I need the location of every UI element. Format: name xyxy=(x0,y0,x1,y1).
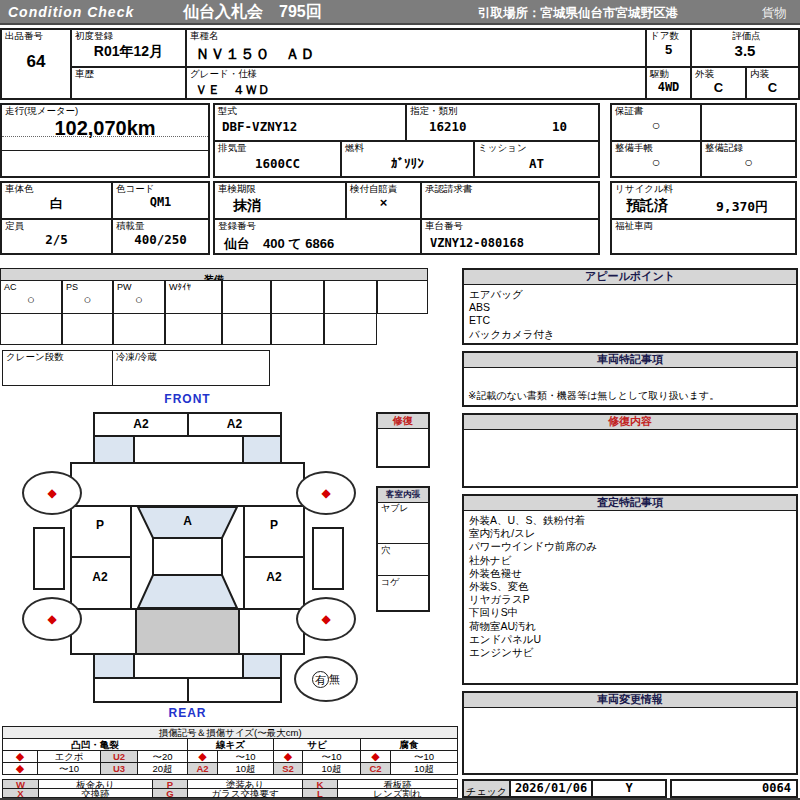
legend-r2-code: C2 xyxy=(360,762,391,775)
check-label-cell: チェック xyxy=(462,779,511,798)
assessment-item: 室内汚れ/スレ xyxy=(469,527,796,540)
approval-request-label: 承認請求書 xyxy=(422,183,598,195)
reefer-cell: 冷凍/冷蔵 xyxy=(112,350,270,386)
inspection-label: 車検期限 xyxy=(215,183,345,195)
legend-r2-size: 〜10 xyxy=(37,762,101,775)
warranty-value: ○ xyxy=(612,117,700,133)
legend-r2-size: 10超 xyxy=(390,762,458,775)
cabin-lining-row-burn: コゲ xyxy=(378,576,428,610)
cabin-lining-box: 客室内張 ヤブレ 穴 コゲ xyxy=(376,486,430,612)
color-code-value: QM1 xyxy=(113,195,208,209)
vehicle-notes-section: 車両特記事項 ※記載のない書類・機器等は無しとして取り扱います。 xyxy=(462,351,798,407)
taillight-left-panel xyxy=(93,653,135,679)
wheel-front-left: ◆ xyxy=(22,471,82,515)
appeal-item: エアバッグ xyxy=(469,288,796,301)
class-value-1: 16210 xyxy=(429,119,467,134)
check-label: チェック xyxy=(466,786,507,797)
chassis-number-cell: 車台番号 VZNY12-080168 xyxy=(420,218,600,255)
doors-label: ドア数 xyxy=(647,30,690,42)
doors-value: 5 xyxy=(647,42,690,57)
check-number-value: 0064 xyxy=(672,781,796,796)
load-capacity-label: 積載量 xyxy=(113,220,208,232)
class-cell: 指定・類別 16210 10 xyxy=(405,103,600,142)
cabin-lining-header: 客室内張 xyxy=(378,488,428,503)
capacity-value: 2/5 xyxy=(2,232,111,247)
load-capacity-cell: 積載量 400/250 xyxy=(111,218,210,255)
check-inspector-cell: Y xyxy=(591,779,667,798)
transmission-cell: ミッション AT xyxy=(473,140,600,178)
insurance-label: 検付自賠責 xyxy=(347,183,420,195)
change-info-section: 車両変更情報 xyxy=(462,691,798,775)
equipment-ps-label: PS xyxy=(63,281,112,292)
auction-condition-sheet: Condition Check 仙台入札会 795回 引取場所：宮城県仙台市宮城… xyxy=(0,0,800,800)
damage-diamond-icon: ◆ xyxy=(321,613,330,625)
lot-number-cell: 出品番号 64 xyxy=(0,28,72,100)
score-cell: 評価点 3.5 xyxy=(690,28,800,68)
first-registration-value: R01年12月 xyxy=(72,43,185,61)
history-label: 車歴 xyxy=(72,68,185,80)
displacement-cell: 排気量 1600CC xyxy=(213,140,342,178)
door-left-code: A2 xyxy=(70,570,130,584)
grade-label: グレード・仕様 xyxy=(187,68,645,80)
equipment-cell-ac: AC ○ xyxy=(0,280,62,314)
interior-grade-label: 内装 xyxy=(747,68,798,80)
maintenance-book-value: ○ xyxy=(612,154,700,170)
equipment-cell-empty xyxy=(0,313,62,345)
vehicle-category: 貨物 xyxy=(762,5,787,22)
appeal-item: ETC xyxy=(469,314,796,327)
assessment-item: エンジンサビ xyxy=(469,646,796,659)
vehicle-notes-note: ※記載のない書類・機器等は無しとして取り扱います。 xyxy=(468,389,719,403)
dotted-divider xyxy=(2,136,208,137)
equipment-ac-value: ○ xyxy=(1,292,61,307)
cabin-lining-tear-label: ヤブレ xyxy=(378,502,428,513)
legend-r2-code: A2 xyxy=(187,762,218,775)
welfare-vehicle-label: 福祉車両 xyxy=(612,220,795,232)
maintenance-record-label: 整備記録 xyxy=(702,142,795,154)
taillight-right-panel xyxy=(242,653,282,679)
legend-r2-diamond: ◆ xyxy=(2,762,38,775)
approval-request-cell: 承認請求書 xyxy=(420,181,600,220)
legend-letter-x-label: 交換跡 xyxy=(38,788,153,798)
transmission-value: AT xyxy=(475,156,598,171)
mileage-label: 走行(現メーター) xyxy=(2,105,208,117)
body-color-cell: 車体色 白 xyxy=(0,181,113,220)
equipment-cell-empty xyxy=(271,280,324,314)
equipment-cell-empty xyxy=(271,313,324,345)
equipment-cell-empty xyxy=(324,280,377,314)
inspection-value: 抹消 xyxy=(233,197,261,215)
presence-yes-circled: 有 xyxy=(312,671,329,688)
doors-cell: ドア数 5 xyxy=(645,28,692,68)
rear-label: REAR xyxy=(120,706,255,720)
equipment-cell-pw: PW ○ xyxy=(113,280,165,314)
damage-diamond-icon: ◆ xyxy=(47,613,56,625)
assessment-item: パワーウインドウ前席のみ xyxy=(469,540,796,553)
recycle-fee-label: リサイクル料 xyxy=(612,183,795,195)
auction-title: 仙台入札会 795回 xyxy=(183,2,322,23)
wheel-rear-left: ◆ xyxy=(22,597,82,641)
assessment-item: 外装色褪せ xyxy=(469,567,796,580)
welfare-vehicle-cell: 福祉車両 xyxy=(610,218,797,255)
rear-bumper-right-panel xyxy=(187,677,282,703)
cabin-lining-burn-label: コゲ xyxy=(378,576,428,587)
wheel-rear-right: ◆ xyxy=(296,597,356,641)
legend-letter-x: X xyxy=(2,788,39,798)
warranty-label: 保証書 xyxy=(612,105,700,117)
equipment-cell-empty xyxy=(62,313,113,345)
equipment-cell-empty xyxy=(222,280,271,314)
displacement-value: 1600CC xyxy=(215,156,340,171)
recycle-fee-value: 9,370円 xyxy=(716,198,768,216)
legend-r2-size: 10超 xyxy=(302,762,361,775)
model-name-cell: 車種名 ＮＶ１５０ ＡＤ xyxy=(185,28,647,68)
change-info-header: 車両変更情報 xyxy=(464,693,796,708)
assessment-item: 荷物室AU汚れ xyxy=(469,620,796,633)
color-code-label: 色コード xyxy=(113,183,208,195)
assessment-item: エンドパネルU xyxy=(469,633,796,646)
registration-number-value: 仙台 400 て 6866 xyxy=(224,235,334,253)
color-code-cell: 色コード QM1 xyxy=(111,181,210,220)
legend-letter-l: L xyxy=(302,788,338,798)
transmission-label: ミッション xyxy=(475,142,598,154)
body-divider-line xyxy=(70,556,132,558)
model-name-label: 車種名 xyxy=(187,30,645,42)
drive-label: 駆動 xyxy=(647,68,690,80)
crane-cell: クレーン段数 xyxy=(2,350,113,386)
history-cell: 車歴 xyxy=(70,66,187,100)
drive-value: 4WD xyxy=(647,80,690,94)
body-color-value: 白 xyxy=(2,195,111,213)
rear-center-panel xyxy=(133,653,244,679)
appeal-item: ABS xyxy=(469,301,796,314)
pickup-location: 引取場所：宮城県仙台市宮城野区港 xyxy=(478,5,678,22)
headlight-left-panel xyxy=(93,435,135,464)
front-grille-panel xyxy=(133,435,244,464)
registration-number-label: 登録番号 xyxy=(215,220,420,232)
solid-divider xyxy=(2,150,208,151)
interior-grade-value: C xyxy=(747,80,798,95)
cargo-roof-panel xyxy=(135,608,240,655)
score-value: 3.5 xyxy=(692,42,798,59)
appeal-points-section: アピールポイント エアバッグ ABS ETC バックカメラ付き xyxy=(462,268,798,345)
recycle-status-value: 預託済 xyxy=(626,197,668,215)
insurance-value: × xyxy=(347,195,420,210)
assessment-notes-section: 査定特記事項 外装A、U、S、鉄粉付着 室内汚れ/スレ パワーウインドウ前席のみ… xyxy=(462,494,798,685)
legend-r2-code: S2 xyxy=(273,762,303,775)
assessment-item: リヤガラスP xyxy=(469,593,796,606)
equipment-cell-empty xyxy=(377,280,428,314)
registration-number-cell: 登録番号 仙台 400 て 6866 xyxy=(213,218,422,255)
class-value-2: 10 xyxy=(552,119,567,134)
drive-cell: 駆動 4WD xyxy=(645,66,692,100)
hood-code: A xyxy=(130,514,245,528)
assessment-item: 下回りS中 xyxy=(469,606,796,619)
legend-title: 損傷記号＆損傷サイズ(〜最大cm) xyxy=(158,727,301,738)
equipment-cell-ps: PS ○ xyxy=(62,280,113,314)
body-divider-line xyxy=(243,556,305,558)
legend-letter-g-label: ガラス交換要す xyxy=(187,788,303,798)
equipment-wtire-label: Wﾀｲﾔ xyxy=(166,281,221,292)
front-bumper-right-code: A2 xyxy=(189,417,280,431)
repair-flag-header: 修復 xyxy=(378,414,428,429)
grade-value: ＶＥ ４ＷＤ xyxy=(195,82,270,99)
body-color-label: 車体色 xyxy=(2,183,111,195)
presence-no: 無 xyxy=(329,672,340,687)
top-bar: Condition Check 仙台入札会 795回 引取場所：宮城県仙台市宮城… xyxy=(0,0,800,25)
class-label: 指定・類別 xyxy=(407,105,598,117)
vehicle-notes-header: 車両特記事項 xyxy=(464,353,796,368)
equipment-cell-wtire: Wﾀｲﾔ xyxy=(165,280,222,314)
repair-content-section: 修復内容 xyxy=(462,413,798,488)
door-right-code: A2 xyxy=(243,570,305,584)
assessment-notes-list: 外装A、U、S、鉄粉付着 室内汚れ/スレ パワーウインドウ前席のみ 社外ナビ 外… xyxy=(464,511,796,659)
maintenance-record-value: ○ xyxy=(702,154,795,170)
appeal-points-header: アピールポイント xyxy=(464,270,796,285)
load-capacity-value: 400/250 xyxy=(113,232,208,247)
exterior-grade-label: 外装 xyxy=(692,68,745,80)
fender-left-code: P xyxy=(70,518,130,532)
fuel-value: ｶﾞｿﾘﾝ xyxy=(342,156,473,171)
side-step-left xyxy=(33,527,65,590)
insurance-cell: 検付自賠責 × xyxy=(345,181,422,220)
equipment-ac-label: AC xyxy=(1,281,61,292)
score-label: 評価点 xyxy=(692,30,798,42)
model-code-label: 型式 xyxy=(215,105,405,117)
exterior-grade-cell: 外装 C xyxy=(690,66,747,100)
legend-r2-size: 10超 xyxy=(217,762,274,775)
maintenance-book-cell: 整備手帳 ○ xyxy=(610,140,702,178)
equipment-cell-empty xyxy=(222,313,271,345)
assessment-item: 外装A、U、S、鉄粉付着 xyxy=(469,514,796,527)
chassis-number-label: 車台番号 xyxy=(422,220,598,232)
rear-bumper-left-panel xyxy=(93,677,189,703)
first-registration-label: 初度登録 xyxy=(72,30,185,42)
legend-letter-l-label: レンズ割れ xyxy=(337,788,458,798)
recycle-fee-cell: リサイクル料 預託済 9,370円 xyxy=(610,181,797,220)
grade-cell: グレード・仕様 ＶＥ ４ＷＤ xyxy=(185,66,647,100)
headlight-right-panel xyxy=(242,435,282,464)
mileage-cell: 走行(現メーター) 102,070km xyxy=(0,103,210,178)
equipment-pw-value: ○ xyxy=(114,292,164,307)
capacity-cell: 定員 2/5 xyxy=(0,218,113,255)
interior-grade-cell: 内装 C xyxy=(745,66,800,100)
maintenance-book-label: 整備手帳 xyxy=(612,142,700,154)
reefer-label: 冷凍/冷蔵 xyxy=(113,351,269,363)
front-bumper-left-panel: A2 xyxy=(93,412,189,437)
check-inspector-value: Y xyxy=(593,781,665,796)
legend-r2-size: 20超 xyxy=(137,762,188,775)
check-date-cell: 2026/01/06 xyxy=(509,779,593,798)
cabin-lining-hole-label: 穴 xyxy=(378,544,428,555)
front-bumper-left-code: A2 xyxy=(95,417,187,431)
displacement-label: 排気量 xyxy=(215,142,340,154)
equipment-cell-empty xyxy=(113,313,165,345)
repair-content-header: 修復内容 xyxy=(464,415,796,430)
crane-label: クレーン段数 xyxy=(3,351,112,363)
front-bumper-right-panel: A2 xyxy=(187,412,282,437)
appeal-item: バックカメラ付き xyxy=(469,328,796,341)
model-code-cell: 型式 DBF-VZNY12 xyxy=(213,103,407,142)
chassis-number-value: VZNY12-080168 xyxy=(430,236,524,250)
check-number-cell: 0064 xyxy=(670,779,798,798)
equipment-pw-label: PW xyxy=(114,281,164,292)
model-name-value: ＮＶ１５０ ＡＤ xyxy=(195,45,315,64)
side-step-right xyxy=(312,527,344,590)
legend-r2-code: U3 xyxy=(100,762,138,775)
equipment-ps-value: ○ xyxy=(63,292,112,307)
maintenance-record-cell: 整備記録 ○ xyxy=(700,140,797,178)
front-label: FRONT xyxy=(120,392,255,406)
warranty-spare-cell xyxy=(700,103,797,142)
spare-tire-presence-badge: 有 無 xyxy=(294,656,358,702)
exterior-grade-value: C xyxy=(692,80,745,95)
equipment-cell-empty xyxy=(324,313,377,345)
damage-diamond-icon: ◆ xyxy=(321,487,330,499)
assessment-item: 社外ナビ xyxy=(469,554,796,567)
fuel-label: 燃料 xyxy=(342,142,473,154)
lot-number-label: 出品番号 xyxy=(2,30,70,42)
appeal-points-list: エアバッグ ABS ETC バックカメラ付き xyxy=(464,285,796,341)
first-registration-cell: 初度登録 R01年12月 xyxy=(70,28,187,68)
wheel-front-right: ◆ xyxy=(296,471,356,515)
equipment-cell-empty xyxy=(165,313,222,345)
capacity-label: 定員 xyxy=(2,220,111,232)
warranty-cell: 保証書 ○ xyxy=(610,103,702,142)
model-code-value: DBF-VZNY12 xyxy=(222,119,297,134)
lot-number-value: 64 xyxy=(2,52,70,72)
fuel-cell: 燃料 ｶﾞｿﾘﾝ xyxy=(340,140,475,178)
assessment-item: 外装S、変色 xyxy=(469,580,796,593)
brand-logo: Condition Check xyxy=(8,4,134,20)
inspection-cell: 車検期限 抹消 xyxy=(213,181,347,220)
cabin-lining-row-tear: ヤブレ xyxy=(378,502,428,544)
check-date-value: 2026/01/06 xyxy=(511,781,591,796)
repair-flag-box: 修復 xyxy=(376,412,430,468)
fender-right-code: P xyxy=(243,518,305,532)
cabin-lining-row-hole: 穴 xyxy=(378,544,428,576)
damage-diamond-icon: ◆ xyxy=(47,487,56,499)
assessment-notes-header: 査定特記事項 xyxy=(464,496,796,511)
legend-letter-g: G xyxy=(152,788,188,798)
